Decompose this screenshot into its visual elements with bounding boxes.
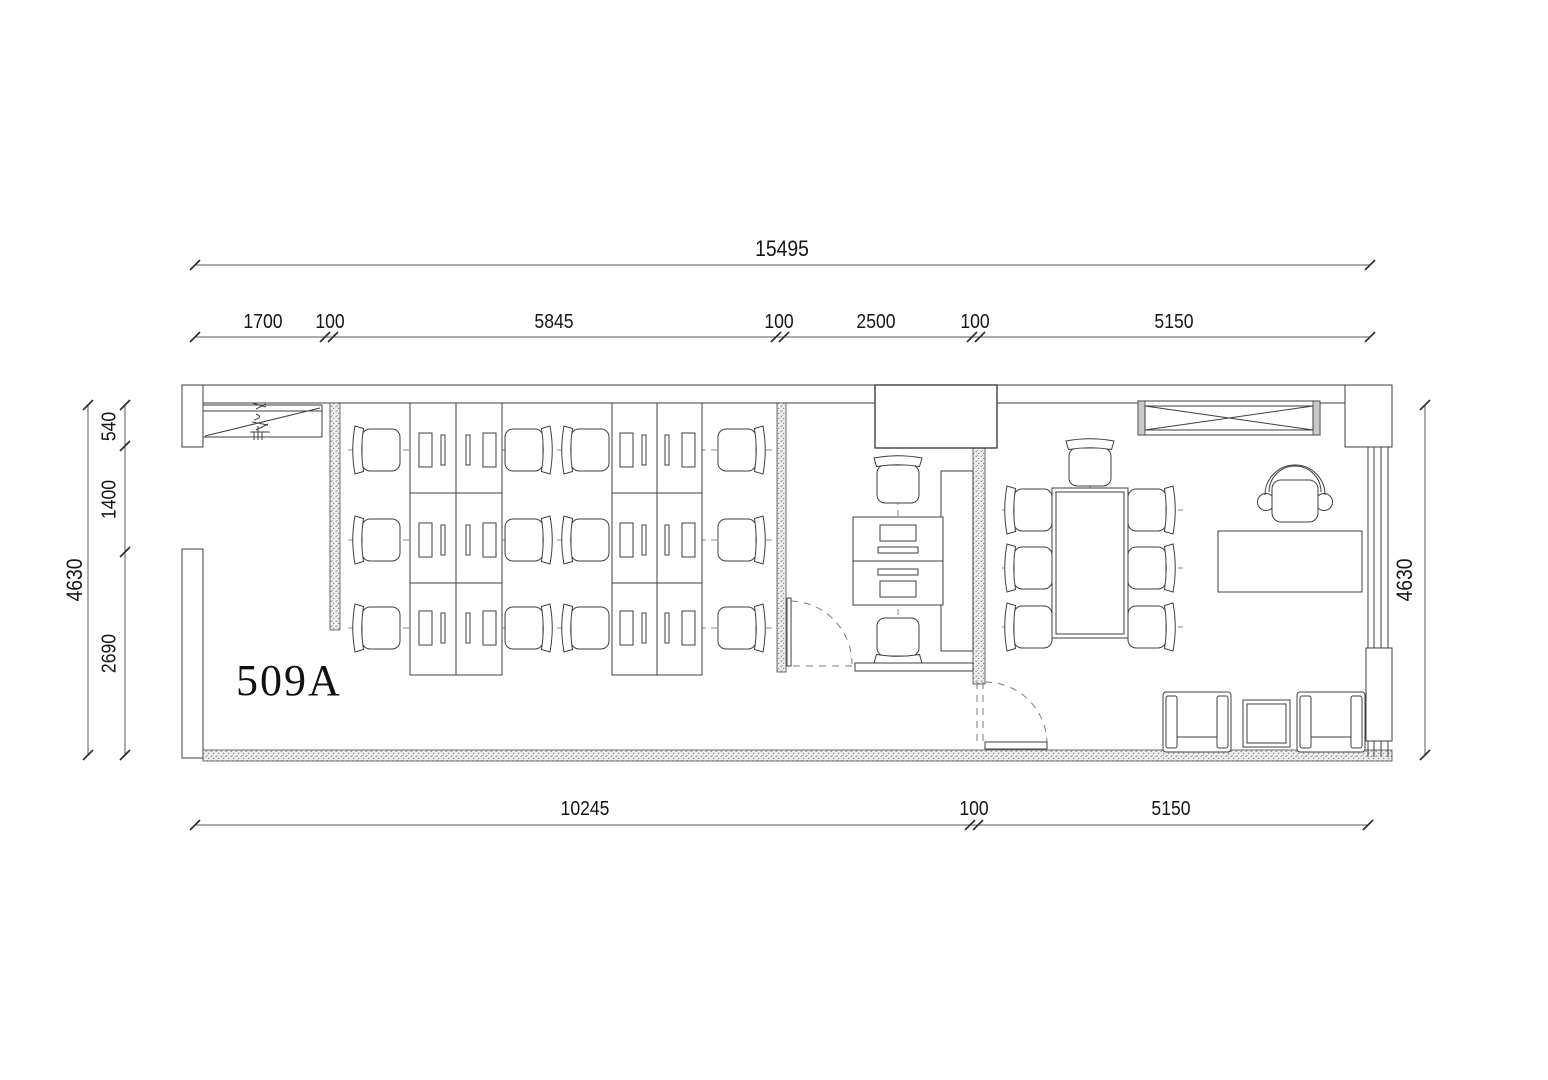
room-number-label: 509A	[236, 655, 342, 706]
dim-label-left-seg-2: 2690	[99, 612, 122, 695]
window-right	[1366, 447, 1392, 757]
dim-label-left-seg-0: 540	[99, 385, 122, 468]
window-pier	[1366, 648, 1392, 741]
left-wall-upper	[182, 385, 203, 447]
dim-label-top-total: 15495	[738, 236, 826, 262]
dim-label-top-seg-1: 100	[295, 311, 365, 334]
dim-label-right-total: 4630	[1392, 539, 1418, 622]
side-table	[1243, 700, 1290, 747]
reception-room	[787, 455, 973, 671]
door-swing-arc	[791, 601, 852, 664]
office-chair-icon	[505, 426, 552, 474]
conference-chair-icon	[1005, 486, 1052, 534]
dimension-line-left-segments	[120, 400, 130, 760]
reception-desk-pair	[853, 517, 943, 605]
top-right-corner-wall	[1345, 385, 1392, 447]
office-chair-icon	[562, 426, 609, 474]
conference-chair-icon	[1005, 603, 1052, 651]
dim-label-top-seg-0: 1700	[228, 311, 298, 334]
dim-label-bottom-seg-0: 10245	[550, 798, 620, 821]
armchair-icon	[1297, 692, 1365, 752]
door-right	[977, 682, 1047, 749]
top-wall	[182, 385, 1392, 403]
dim-label-top-seg-3: 100	[744, 311, 814, 334]
side-cabinet	[941, 471, 973, 651]
dim-label-top-seg-5: 100	[940, 311, 1010, 334]
floorplan-canvas: 15495 1700 100 5845 100 2500 100 5150 10…	[0, 0, 1548, 1080]
dim-label-top-seg-4: 2500	[841, 311, 911, 334]
door-swing-arc	[985, 682, 1047, 744]
workstation-bank-b	[612, 403, 702, 675]
office-chair-icon	[718, 426, 765, 474]
office-chair-icon	[562, 604, 609, 652]
office-chair-icon	[353, 604, 400, 652]
dim-label-left-seg-1: 1400	[99, 458, 122, 541]
executive-desk	[1218, 531, 1362, 592]
partition-wall-2	[777, 403, 786, 672]
conference-chair-icon	[1128, 544, 1175, 592]
conference-chair-icon	[1128, 486, 1175, 534]
workstation-area	[348, 403, 772, 675]
door-threshold	[855, 663, 973, 671]
left-wall-lower	[182, 549, 203, 758]
dim-label-top-seg-2: 5845	[519, 311, 589, 334]
conference-table	[1052, 488, 1128, 638]
entry-cabinet	[203, 403, 322, 440]
executive-room	[977, 401, 1365, 752]
dim-label-top-seg-6: 5150	[1139, 311, 1209, 334]
dim-label-left-total: 4630	[62, 539, 88, 622]
office-chair-icon	[562, 516, 609, 564]
floorplan-drawing	[0, 0, 1548, 1080]
conference-chair-icon	[1005, 544, 1052, 592]
conference-chair-icon	[1066, 439, 1114, 486]
office-chair-icon	[505, 604, 552, 652]
conference-chair-icon	[1128, 603, 1175, 651]
door-leaf	[787, 598, 791, 666]
dim-label-bottom-seg-1: 100	[939, 798, 1009, 821]
door-leaf	[985, 742, 1047, 749]
wardrobe-crossed-cabinet	[1138, 401, 1320, 435]
office-chair-icon	[505, 516, 552, 564]
office-chair-icon	[718, 604, 765, 652]
partition-wall-1	[330, 403, 340, 630]
partition-wall-3	[973, 448, 985, 684]
office-chair-icon	[874, 618, 922, 665]
executive-chair-icon	[1258, 465, 1333, 522]
dimension-line-bottom	[190, 820, 1373, 830]
office-chair-icon	[874, 456, 922, 503]
office-chair-icon	[353, 516, 400, 564]
office-chair-icon	[353, 426, 400, 474]
workstation-bank-a	[410, 403, 502, 675]
dimension-line-right-total	[1420, 400, 1430, 760]
office-chair-icon	[718, 516, 765, 564]
armchair-icon	[1163, 692, 1231, 752]
shaft-column	[875, 385, 997, 448]
dim-label-bottom-seg-2: 5150	[1136, 798, 1206, 821]
